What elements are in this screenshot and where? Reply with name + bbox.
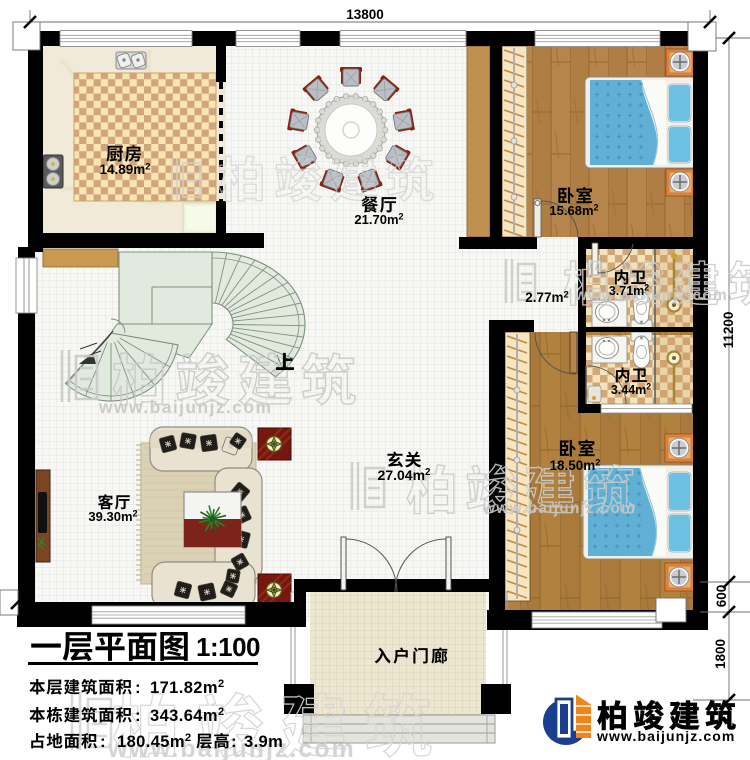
svg-text:343.64m2: 343.64m2	[150, 706, 224, 725]
svg-text:13800: 13800	[346, 7, 384, 22]
svg-text::: :	[135, 706, 141, 725]
svg-text:1800: 1800	[713, 639, 728, 669]
svg-text::: :	[100, 732, 106, 751]
svg-text::: :	[135, 678, 141, 697]
svg-text:18.50m2: 18.50m2	[549, 456, 600, 473]
svg-text:3.44m2: 3.44m2	[611, 382, 651, 397]
svg-text:www.baijunjz.com: www.baijunjz.com	[482, 500, 636, 517]
svg-text:www.baijunjz.com: www.baijunjz.com	[596, 728, 735, 744]
svg-text:11200: 11200	[721, 312, 736, 349]
svg-text:180.45m2: 180.45m2	[117, 732, 191, 751]
svg-text:600: 600	[714, 585, 729, 608]
svg-text:3.71m2: 3.71m2	[609, 283, 649, 298]
svg-text:3.9m: 3.9m	[244, 733, 283, 751]
svg-text:171.82m2: 171.82m2	[150, 678, 224, 697]
svg-text:2.77m2: 2.77m2	[525, 288, 569, 305]
svg-text:27.04m2: 27.04m2	[378, 467, 431, 483]
svg-text:14.89m2: 14.89m2	[99, 160, 150, 177]
svg-text:21.70m2: 21.70m2	[354, 212, 403, 228]
svg-text:1:100: 1:100	[196, 632, 260, 662]
svg-text::: :	[231, 732, 237, 751]
svg-text:39.30m2: 39.30m2	[88, 509, 137, 525]
svg-text:www.baijunjz.com: www.baijunjz.com	[98, 397, 272, 417]
svg-text:www.baijunjz.com: www.baijunjz.com	[574, 287, 728, 304]
svg-text:15.68m2: 15.68m2	[549, 203, 598, 219]
